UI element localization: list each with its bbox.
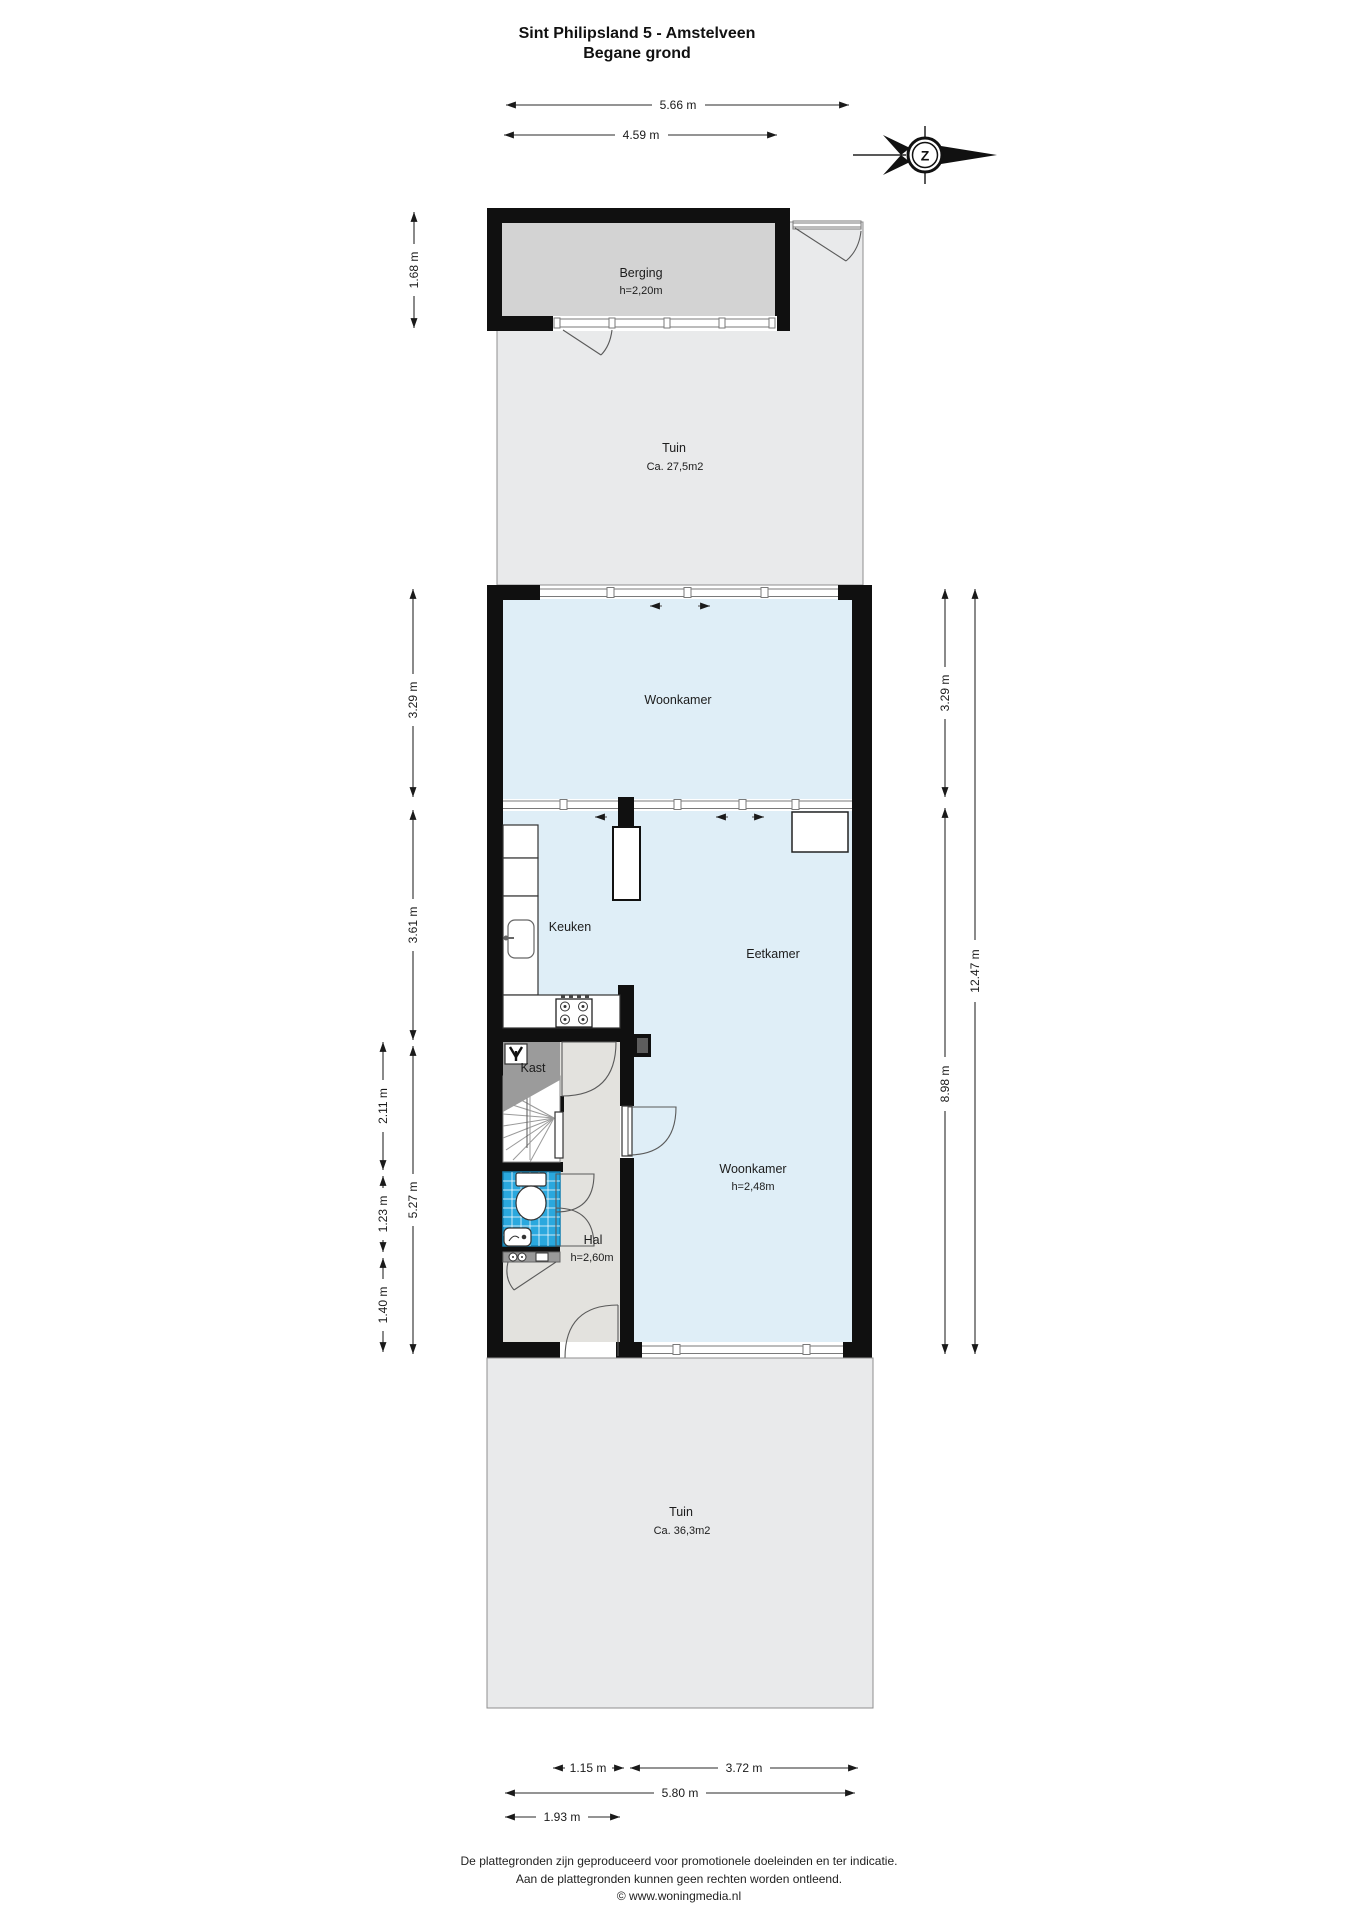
svg-text:4.59 m: 4.59 m xyxy=(623,128,660,142)
hall-floor xyxy=(560,1042,620,1342)
svg-text:8.98 m: 8.98 m xyxy=(938,1066,952,1103)
living-room-ceiling: h=2,48m xyxy=(731,1181,774,1193)
dim-left-kast-trap: 2.11 m xyxy=(375,1042,391,1170)
dim-bottom-woonkamer: 3.72 m xyxy=(630,1760,858,1775)
garden-south-label: Tuin xyxy=(669,1505,693,1519)
garden-south-area: Ca. 36,3m2 xyxy=(654,1525,711,1537)
floorplan-drawing: Sint Philipsland 5 - Amstelveen Begane g… xyxy=(0,0,1358,1920)
dim-top-total: 5.66 m xyxy=(506,97,849,112)
svg-text:1.68 m: 1.68 m xyxy=(407,252,421,289)
dining-room-label: Eetkamer xyxy=(746,947,800,961)
dim-left-hal: 5.27 m xyxy=(405,1046,421,1354)
svg-text:5.27 m: 5.27 m xyxy=(406,1182,420,1219)
garden-south: Tuin Ca. 36,3m2 xyxy=(487,1358,873,1708)
dim-top-berging: 4.59 m xyxy=(504,127,777,142)
garden-north-area: Ca. 27,5m2 xyxy=(647,461,704,473)
dim-bottom-total: 5.80 m xyxy=(505,1785,855,1800)
floorplan-page: Sint Philipsland 5 - Amstelveen Begane g… xyxy=(0,0,1358,1920)
storage-ceiling: h=2,20m xyxy=(619,285,662,297)
living-room-north-label: Woonkamer xyxy=(644,693,711,707)
dim-left-woonkamer: 3.29 m xyxy=(405,589,421,797)
footer-disclaimer: De plattegronden zijn geproduceerd voor … xyxy=(461,1854,898,1903)
dim-bottom-hal: 1.93 m xyxy=(505,1809,620,1824)
kitchen-label: Keuken xyxy=(549,920,591,934)
chimney-block xyxy=(634,1034,651,1057)
footer-line-1: De plattegronden zijn geproduceerd voor … xyxy=(461,1854,898,1868)
svg-text:12.47 m: 12.47 m xyxy=(968,949,982,992)
dim-right-south: 8.98 m xyxy=(937,808,953,1354)
svg-text:1.23 m: 1.23 m xyxy=(376,1196,390,1233)
svg-text:1.40 m: 1.40 m xyxy=(376,1287,390,1324)
dim-right-woonkamer: 3.29 m xyxy=(937,589,953,797)
dim-berging-depth: 1.68 m xyxy=(406,212,422,328)
compass-icon: Z xyxy=(853,126,997,184)
page-title: Sint Philipsland 5 - Amstelveen Begane g… xyxy=(519,25,756,62)
dim-bottom-door: 1.15 m xyxy=(553,1760,624,1775)
closet-label: Kast xyxy=(520,1061,546,1075)
toilet-icon xyxy=(516,1173,546,1220)
svg-text:3.61 m: 3.61 m xyxy=(406,907,420,944)
dim-right-total: 12.47 m xyxy=(967,589,983,1354)
storage-label: Berging xyxy=(619,266,662,280)
hall-floor-entry xyxy=(503,1262,560,1342)
kitchen-island xyxy=(613,827,640,900)
svg-text:2.11 m: 2.11 m xyxy=(376,1088,390,1124)
footer-credit: © www.woningmedia.nl xyxy=(617,1889,741,1903)
dim-left-entree: 1.40 m xyxy=(375,1258,391,1352)
title-floor: Begane grond xyxy=(583,45,691,62)
svg-text:1.93 m: 1.93 m xyxy=(544,1810,581,1824)
living-room-label: Woonkamer xyxy=(719,1162,786,1176)
svg-text:5.80 m: 5.80 m xyxy=(662,1786,699,1800)
dining-cabinet xyxy=(792,812,848,852)
dim-left-toilet: 1.23 m xyxy=(375,1176,391,1252)
washbasin-icon xyxy=(504,1228,531,1246)
stairs-door-leaf xyxy=(555,1112,563,1158)
window-band-bottom xyxy=(642,1344,843,1356)
hall-ceiling: h=2,60m xyxy=(570,1252,613,1264)
svg-text:5.66 m: 5.66 m xyxy=(660,98,697,112)
svg-text:3.29 m: 3.29 m xyxy=(406,682,420,719)
sink-icon xyxy=(504,920,535,958)
compass-letter: Z xyxy=(921,148,930,164)
svg-text:3.29 m: 3.29 m xyxy=(938,675,952,712)
hall-label: Hal xyxy=(584,1233,603,1247)
svg-text:1.15 m: 1.15 m xyxy=(570,1761,607,1775)
dim-left-keuken: 3.61 m xyxy=(405,810,421,1040)
stove-icon xyxy=(556,995,592,1027)
garden-north-label: Tuin xyxy=(662,441,686,455)
svg-text:3.72 m: 3.72 m xyxy=(726,1761,763,1775)
title-address: Sint Philipsland 5 - Amstelveen xyxy=(519,25,756,42)
footer-line-2: Aan de plattegronden kunnen geen rechten… xyxy=(516,1872,842,1886)
